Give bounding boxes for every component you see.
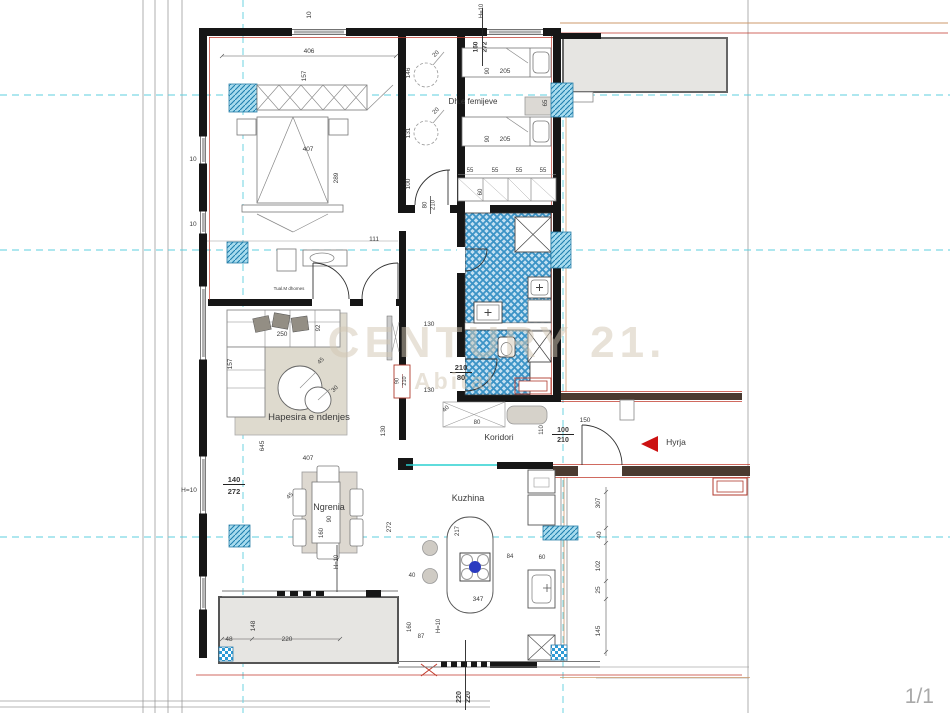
dimension-label: 210 — [402, 376, 408, 385]
dimension-label: 160 — [319, 527, 325, 538]
dimension-label: 210 — [557, 437, 569, 444]
dimension-label: 289 — [333, 172, 340, 183]
dimension-label: 90 — [395, 378, 401, 384]
dimension-label: 145 — [595, 625, 602, 636]
dimension-label: 407 — [303, 146, 314, 153]
dimension-label: 210 — [431, 199, 437, 210]
bench — [507, 406, 547, 424]
dimension-label: 406 — [304, 48, 315, 55]
room-label: Koridori — [484, 432, 513, 442]
balcony-top-right — [561, 33, 727, 102]
dimension-label: 220 — [282, 636, 293, 643]
dining-table — [312, 482, 340, 543]
dimension-label: 80 — [457, 373, 465, 382]
floor-plan-drawing: CENTURY 21. Abital 10H=101602721010H=101… — [0, 0, 950, 713]
dimension-label: 347 — [473, 596, 484, 603]
chair — [293, 489, 306, 516]
chair — [350, 489, 363, 516]
room-label: Hapesira e ndenjes — [268, 412, 350, 423]
dining-area — [293, 466, 363, 559]
dimension-label: 100 — [405, 178, 412, 189]
dimension-label: H=10 — [181, 487, 197, 494]
dimension-label: 87 — [418, 634, 425, 640]
dimension-label: 48 — [225, 636, 233, 643]
dimension-label: H=10 — [436, 618, 442, 633]
page-indicator: 1/1 — [905, 685, 934, 709]
door-dressing-2 — [362, 263, 398, 299]
dimension-label: 205 — [500, 68, 511, 75]
shaft-hatch-icon — [229, 525, 250, 547]
dimension-label: 272 — [228, 487, 241, 496]
top-hall — [414, 52, 444, 145]
dimension-label: 25 — [595, 586, 602, 594]
master-bedroom — [229, 84, 393, 232]
dimension-label: 90 — [327, 515, 333, 522]
window-dining-balcony — [222, 590, 398, 597]
dimension-label: 140 — [228, 475, 241, 484]
corridor — [443, 402, 547, 427]
dimension-label: 40 — [409, 573, 416, 579]
stool — [423, 569, 438, 584]
dimension-label: 150 — [580, 417, 591, 424]
room-label: Kuzhina — [452, 493, 485, 503]
dimension-label: 220 — [465, 691, 472, 703]
dressing-area — [207, 241, 398, 271]
bed — [257, 117, 328, 203]
window-top-1 — [288, 28, 350, 37]
shaft-checker-icon — [219, 647, 233, 661]
dimension-label: 10 — [306, 11, 313, 19]
dimension-label: 92 — [316, 324, 322, 331]
dimension-label: 60 — [539, 555, 546, 561]
dimension-label: 160 — [473, 41, 480, 52]
dimension-label: 131 — [405, 127, 412, 138]
dimension-label: 55 — [467, 168, 474, 174]
dimension-label: 10 — [189, 156, 197, 163]
dimension-label: 645 — [259, 440, 266, 451]
kitchen — [406, 465, 578, 660]
dimension-label: 250 — [277, 331, 288, 338]
entrance-arrow-icon — [641, 436, 658, 452]
dimension-label: 40 — [596, 531, 603, 539]
dimension-label: 217 — [455, 525, 461, 536]
dimension-label: 60 — [478, 188, 484, 195]
chair — [317, 466, 339, 483]
dimension-label: H=10 — [479, 3, 485, 18]
dimension-label: 55 — [516, 168, 523, 174]
door-hall — [415, 170, 450, 205]
dimension-label: 80 — [474, 420, 481, 426]
wardrobe — [458, 178, 556, 201]
stool — [423, 541, 438, 556]
watermark-brand: CENTURY 21. — [328, 318, 667, 367]
dimension-label: 272 — [482, 41, 489, 52]
dimension-label: 10 — [189, 221, 197, 228]
door-entrance — [582, 425, 622, 465]
shaft-hatch-icon — [551, 83, 573, 117]
window-top-2 — [483, 28, 547, 37]
shaft-hatch-icon — [543, 526, 578, 540]
dimension-label: 157 — [301, 70, 308, 81]
dimension-label: 55 — [540, 168, 547, 174]
dimension-label: 130 — [424, 387, 435, 394]
dimension-label: 205 — [500, 136, 511, 143]
dimension-label: 111 — [369, 236, 379, 243]
dimension-label: 407 — [303, 455, 314, 462]
dimension-label: 130 — [380, 425, 387, 436]
door-dressing-1 — [313, 263, 349, 299]
dimension-label: 148 — [250, 620, 257, 631]
red-cross-mark-icon — [421, 664, 437, 676]
sofa — [227, 347, 265, 417]
room-label: Dh.e femijeve — [449, 97, 498, 106]
kitchen-sink-icon — [532, 575, 551, 603]
dimension-label: 100 — [557, 427, 569, 434]
dimension-label: 90 — [485, 135, 491, 142]
dimension-label: 84 — [507, 554, 514, 560]
dimension-label: 65 — [543, 99, 549, 106]
dimension-label: 160 — [407, 621, 413, 632]
floor-plan-page: CENTURY 21. Abital 10H=101602721010H=101… — [0, 0, 950, 713]
shaft-hatch-icon — [229, 84, 257, 112]
dimension-label: 157 — [227, 358, 234, 369]
dimension-label: 146 — [405, 67, 412, 78]
room-label: Hyrja — [666, 437, 686, 447]
balcony-bottom-left — [219, 597, 437, 676]
dimension-label: 307 — [595, 497, 602, 508]
shaft-hatch-icon — [551, 232, 571, 268]
dimension-label: 220 — [456, 691, 463, 703]
shaft-checker-icon — [551, 645, 567, 660]
dimension-label: 272 — [386, 521, 393, 532]
dimension-label: 55 — [492, 168, 499, 174]
room-label: Tual.M dhomes — [274, 286, 306, 291]
dimension-label: 80 — [423, 201, 429, 208]
dimension-label: 110 — [539, 425, 545, 435]
chair — [293, 519, 306, 546]
cabinet — [528, 495, 555, 525]
dimension-label: 130 — [424, 321, 435, 328]
dimension-label: 90 — [485, 67, 491, 74]
shaft-hatch-icon — [227, 242, 248, 263]
room-label: Ngrenia — [313, 502, 345, 512]
chair — [350, 519, 363, 546]
stove-icon — [460, 553, 490, 581]
dimension-label: H=10 — [334, 554, 340, 569]
dimension-label: 102 — [595, 560, 602, 571]
dimension-label: 210 — [455, 363, 468, 372]
